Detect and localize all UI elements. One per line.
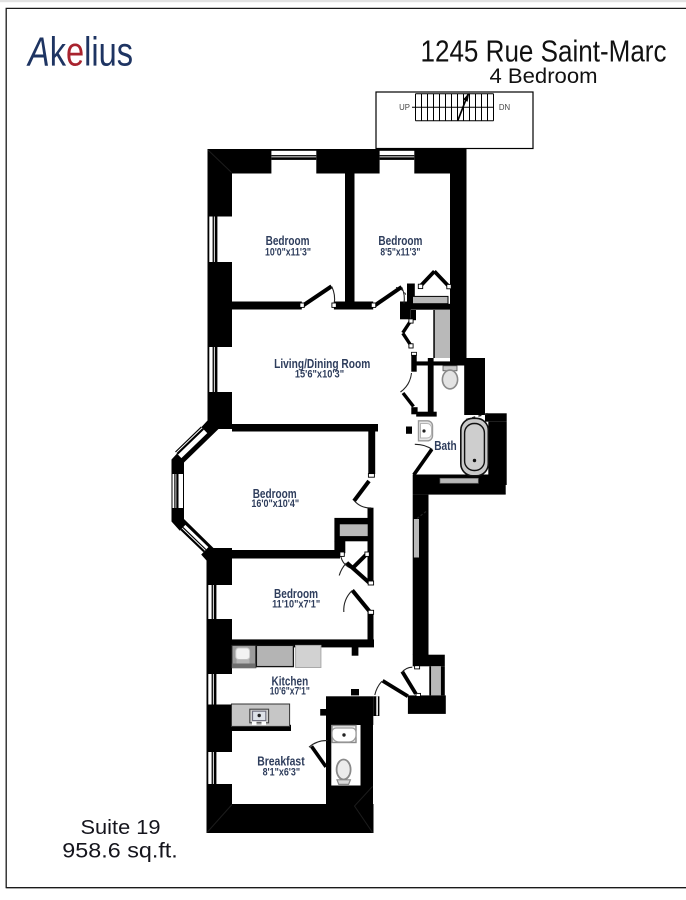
svg-text:10'0"x11'3": 10'0"x11'3" (265, 247, 311, 259)
svg-text:15'6"x10'3": 15'6"x10'3" (295, 368, 344, 380)
svg-text:Suite 19: Suite 19 (81, 817, 161, 839)
svg-text:11'10"x7'1": 11'10"x7'1" (272, 598, 320, 610)
svg-text:8'1"x6'3": 8'1"x6'3" (263, 767, 301, 779)
svg-text:Akelius: Akelius (26, 29, 133, 75)
svg-text:Bath: Bath (434, 438, 457, 453)
svg-text:DN: DN (499, 103, 510, 112)
svg-text:10'6"x7'1": 10'6"x7'1" (270, 686, 310, 698)
svg-text:UP: UP (399, 103, 410, 112)
svg-text:4 Bedroom: 4 Bedroom (490, 64, 598, 88)
svg-text:16'0"x10'4": 16'0"x10'4" (251, 498, 299, 510)
svg-text:8'5"x11'3": 8'5"x11'3" (380, 247, 420, 259)
svg-text:958.6 sq.ft.: 958.6 sq.ft. (62, 839, 178, 863)
